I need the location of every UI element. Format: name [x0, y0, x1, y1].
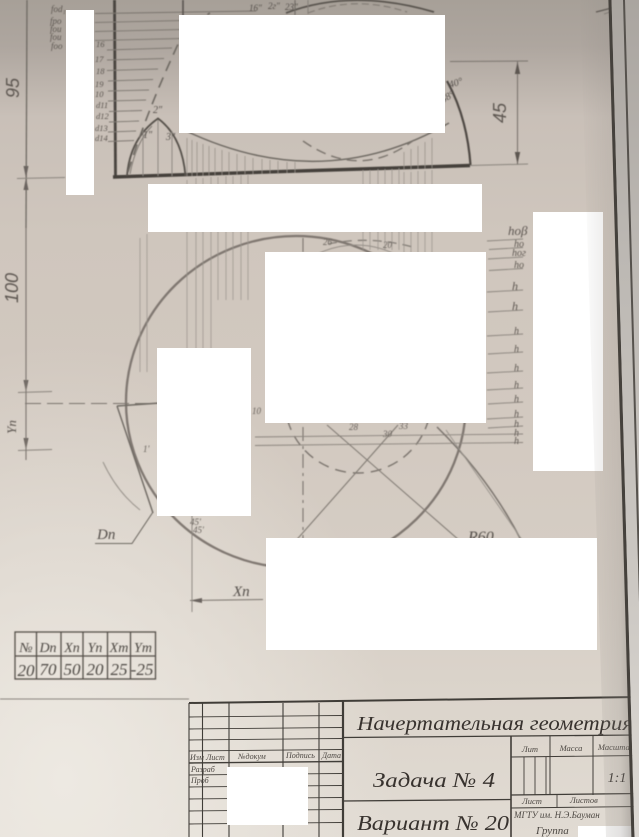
- svg-text:Дата: Дата: [321, 751, 341, 760]
- svg-text:23": 23": [285, 2, 298, 12]
- svg-text:20: 20: [18, 661, 36, 680]
- svg-text:50: 50: [64, 660, 82, 679]
- svg-text:h: h: [512, 299, 518, 313]
- svg-text:Задача № 4: Задача № 4: [373, 768, 496, 792]
- svg-text:h: h: [514, 344, 519, 355]
- svg-text:Xп: Xп: [232, 584, 250, 600]
- svg-text:hо: hо: [514, 260, 524, 271]
- svg-text:Xт: Xт: [109, 641, 129, 656]
- svg-text:-25: -25: [131, 660, 154, 679]
- svg-text:Лист: Лист: [521, 796, 542, 806]
- svg-text:3": 3": [165, 132, 176, 143]
- svg-text:28: 28: [349, 422, 359, 432]
- svg-text:Разраб: Разраб: [190, 765, 216, 774]
- svg-text:95: 95: [3, 77, 23, 98]
- svg-text:70: 70: [40, 660, 58, 679]
- svg-text:Лист: Лист: [205, 753, 225, 762]
- svg-text:Проб: Проб: [190, 776, 210, 785]
- svg-text:d14: d14: [95, 133, 109, 143]
- svg-text:Группа: Группа: [535, 825, 569, 837]
- svg-text:1': 1': [143, 444, 151, 454]
- svg-text:26: 26: [323, 237, 333, 247]
- svg-text:Dп: Dп: [38, 641, 56, 656]
- svg-text:Листов: Листов: [569, 795, 598, 805]
- svg-text:16: 16: [96, 39, 105, 49]
- svg-text:2": 2": [153, 105, 163, 116]
- svg-text:d12: d12: [96, 111, 110, 121]
- svg-text:fоо: fоо: [51, 41, 63, 51]
- svg-text:Yп: Yп: [88, 641, 103, 656]
- svg-text:h: h: [514, 394, 519, 405]
- svg-text:19: 19: [95, 79, 104, 89]
- svg-text:30: 30: [382, 429, 393, 439]
- svg-text:17: 17: [95, 54, 104, 64]
- svg-text:Вариант № 20: Вариант № 20: [357, 811, 510, 835]
- svg-text:Масса: Масса: [559, 743, 583, 753]
- svg-text:h: h: [514, 326, 519, 337]
- svg-text:Подпись: Подпись: [285, 751, 315, 760]
- svg-text:МГТУ им. Н.Э.Бауман: МГТУ им. Н.Э.Бауман: [513, 810, 600, 820]
- svg-text:1": 1": [143, 130, 153, 141]
- svg-text:100: 100: [2, 273, 22, 303]
- svg-text:Yт: Yт: [134, 641, 152, 656]
- svg-text:20: 20: [87, 660, 105, 679]
- svg-text:10: 10: [252, 406, 262, 416]
- svg-text:10: 10: [95, 89, 104, 99]
- svg-text:25: 25: [111, 660, 128, 679]
- svg-text:hоβ: hоβ: [508, 223, 528, 238]
- svg-text:2г": 2г": [268, 1, 280, 11]
- svg-text:h: h: [512, 279, 518, 293]
- svg-text:45': 45': [193, 525, 205, 535]
- svg-text:d13: d13: [95, 123, 108, 133]
- svg-text:20: 20: [383, 240, 393, 250]
- svg-text:№: №: [18, 641, 32, 656]
- svg-text:18: 18: [96, 66, 105, 76]
- svg-text:45: 45: [490, 102, 510, 123]
- svg-text:d11: d11: [96, 100, 108, 110]
- svg-text:16": 16": [249, 3, 262, 13]
- svg-text:h: h: [514, 380, 519, 391]
- svg-text:Начертательная геометрия: Начертательная геометрия: [356, 713, 633, 735]
- svg-text:fоd₁: fоd₁: [51, 4, 66, 14]
- svg-text:h: h: [514, 363, 519, 374]
- svg-text:Yп: Yп: [4, 420, 19, 434]
- svg-text:Dп: Dп: [96, 527, 115, 543]
- svg-text:h: h: [514, 436, 519, 447]
- svg-text:Изм: Изм: [189, 753, 204, 762]
- svg-text:hог: hог: [512, 248, 526, 259]
- svg-text:Лит: Лит: [521, 744, 538, 754]
- svg-text:№докум: №докум: [237, 752, 266, 761]
- svg-text:Xп: Xп: [63, 641, 80, 656]
